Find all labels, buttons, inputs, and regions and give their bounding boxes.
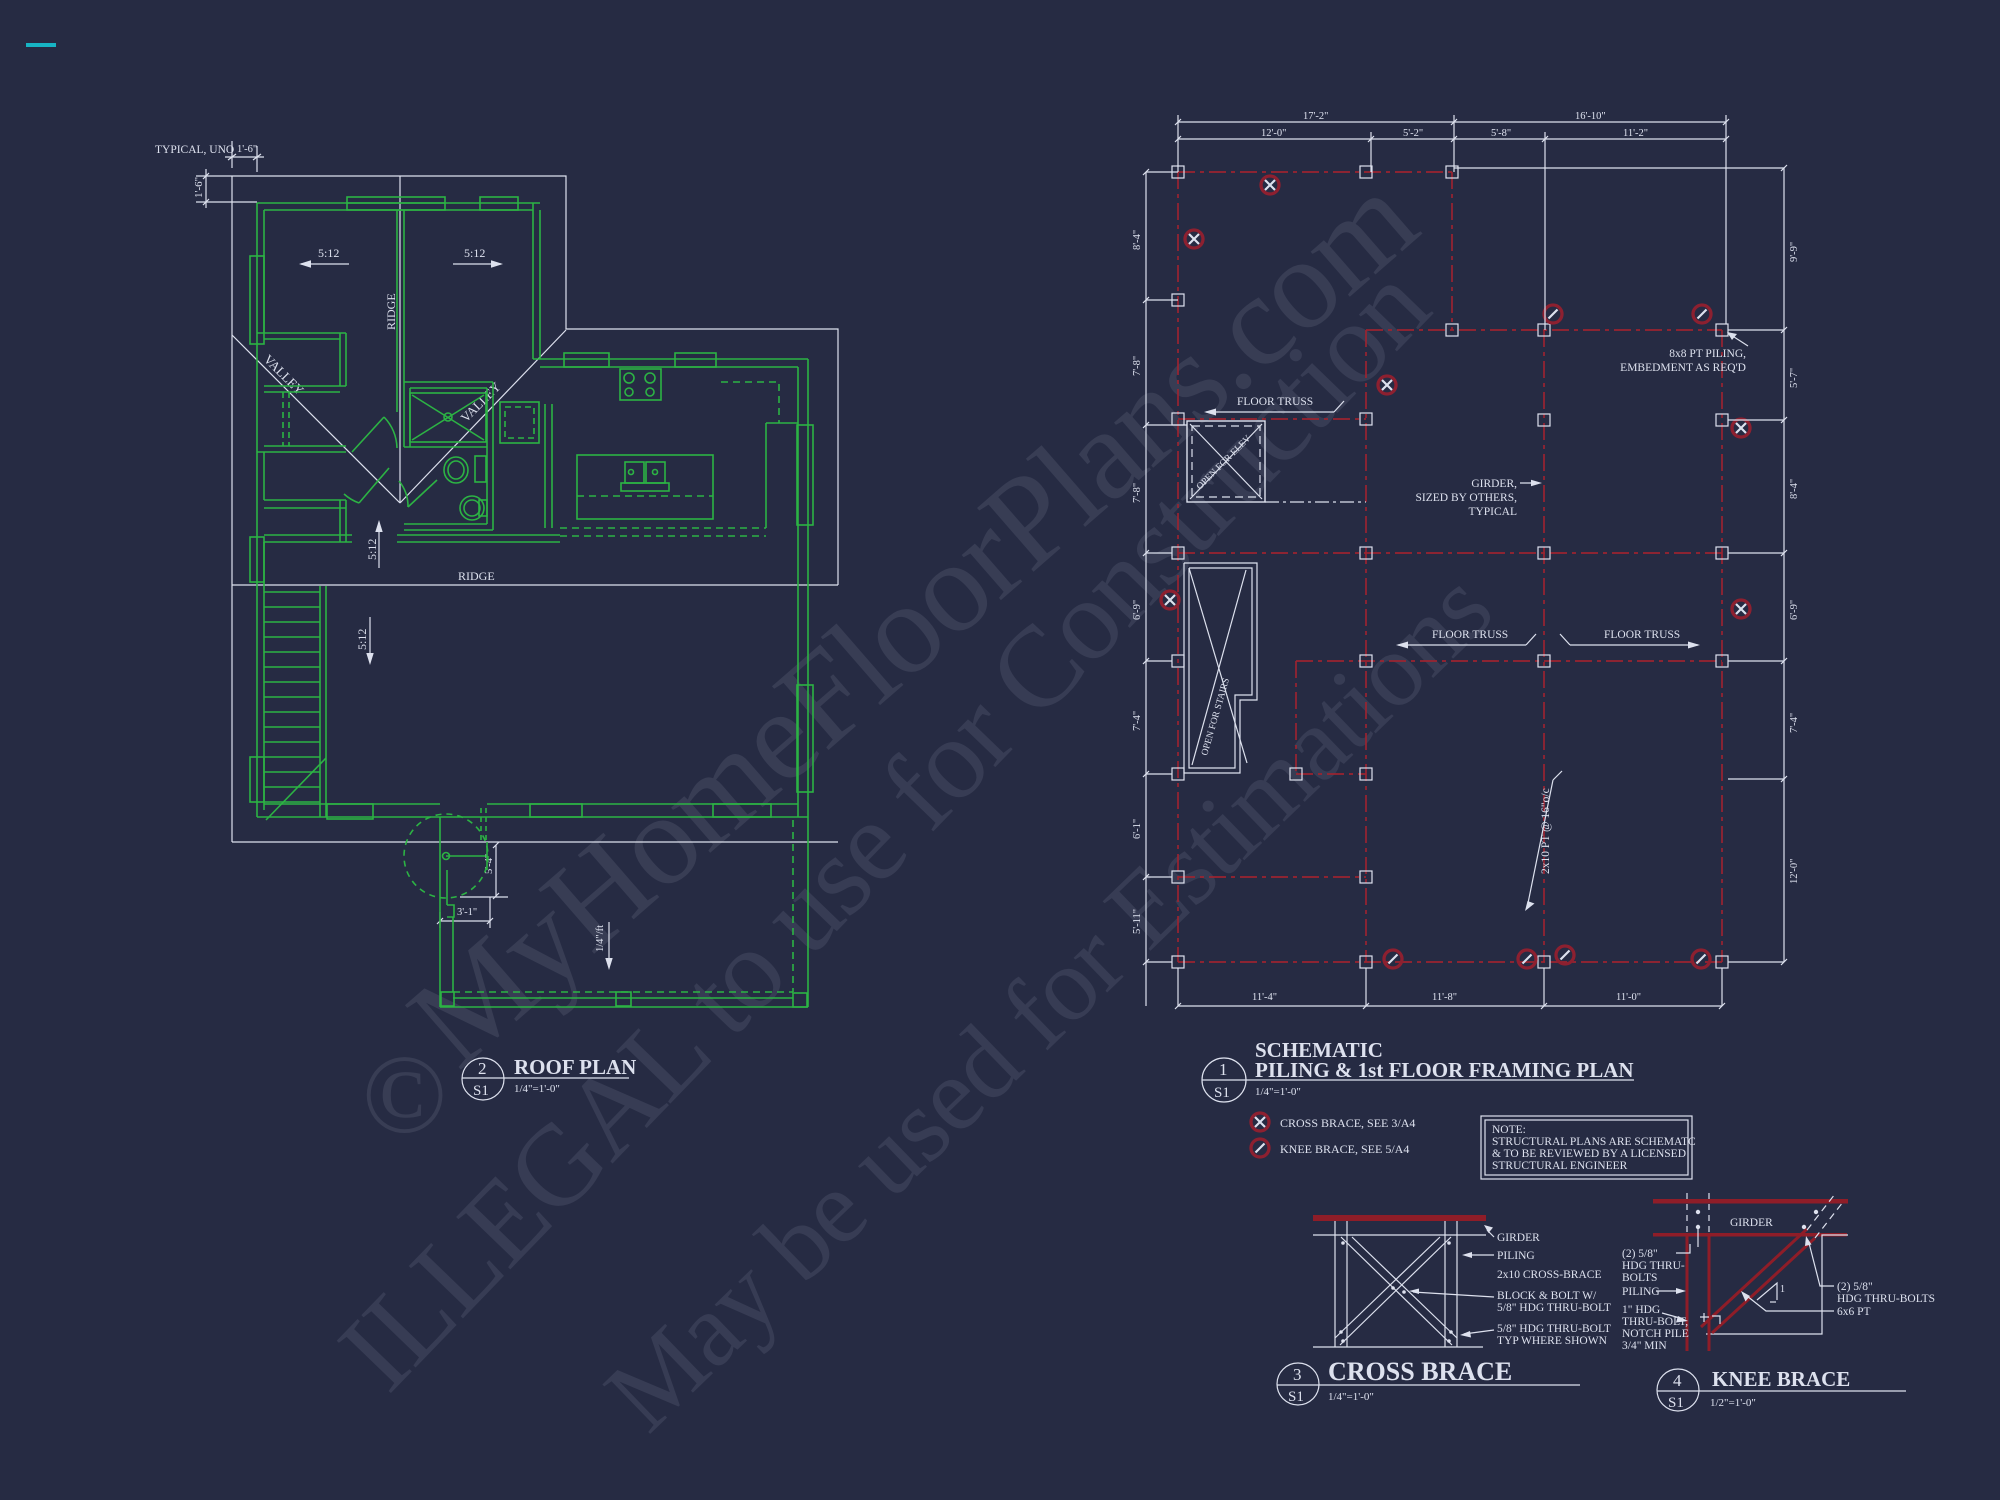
- svg-text:GIRDER: GIRDER: [1730, 1217, 1773, 1229]
- svg-text:S1: S1: [473, 1083, 489, 1099]
- svg-text:7'-8": 7'-8": [1132, 356, 1143, 376]
- svg-text:1" HDG: 1" HDG: [1622, 1304, 1660, 1316]
- svg-text:1/4"=1'-0": 1/4"=1'-0": [1255, 1086, 1301, 1098]
- svg-text:1/4"/ft: 1/4"/ft: [595, 925, 606, 952]
- svg-text:6'-9": 6'-9": [1789, 600, 1800, 620]
- svg-text:7'-8": 7'-8": [1132, 483, 1143, 503]
- svg-text:5'-2": 5'-2": [1403, 128, 1423, 139]
- svg-text:5:12: 5:12: [318, 246, 339, 260]
- svg-text:GIRDER,: GIRDER,: [1471, 478, 1517, 490]
- svg-text:SIZED BY OTHERS,: SIZED BY OTHERS,: [1416, 492, 1518, 504]
- svg-text:3: 3: [1293, 1365, 1302, 1384]
- svg-text:STRUCTURAL PLANS ARE SCHEMATC: STRUCTURAL PLANS ARE SCHEMATC: [1492, 1136, 1696, 1148]
- svg-text:PILING: PILING: [1497, 1250, 1535, 1262]
- svg-text:1/4"=1'-0": 1/4"=1'-0": [514, 1083, 560, 1095]
- svg-text:11'-2": 11'-2": [1623, 128, 1648, 139]
- svg-text:3'-1": 3'-1": [457, 907, 477, 918]
- svg-text:12'-0": 12'-0": [1789, 859, 1800, 884]
- svg-text:1: 1: [1219, 1060, 1228, 1079]
- svg-text:9'-9": 9'-9": [1789, 242, 1800, 262]
- svg-text:KNEE BRACE: KNEE BRACE: [1712, 1367, 1850, 1391]
- svg-text:S1: S1: [1288, 1389, 1304, 1405]
- svg-text:HDG THRU-: HDG THRU-: [1622, 1260, 1685, 1272]
- svg-text:5:12: 5:12: [464, 246, 485, 260]
- svg-text:FLOOR TRUSS: FLOOR TRUSS: [1604, 629, 1680, 641]
- svg-text:KNEE BRACE, SEE 5/A4: KNEE BRACE, SEE 5/A4: [1280, 1142, 1409, 1156]
- svg-text:8x8 PT PILING,: 8x8 PT PILING,: [1669, 348, 1746, 360]
- svg-text:TYP WHERE SHOWN: TYP WHERE SHOWN: [1497, 1335, 1608, 1347]
- svg-text:©: ©: [362, 1033, 447, 1157]
- svg-text:5'-11": 5'-11": [1132, 909, 1143, 934]
- svg-text:NOTE:: NOTE:: [1492, 1124, 1526, 1136]
- svg-text:GIRDER: GIRDER: [1497, 1232, 1540, 1244]
- svg-text:PILING & 1st FLOOR FRAMING PLA: PILING & 1st FLOOR FRAMING PLAN: [1255, 1058, 1634, 1082]
- svg-text:5:12: 5:12: [355, 629, 369, 650]
- svg-text:1'-6": 1'-6": [237, 144, 257, 155]
- svg-text:CROSS BRACE: CROSS BRACE: [1328, 1357, 1512, 1386]
- svg-text:S1: S1: [1214, 1085, 1230, 1101]
- svg-text:5/8" HDG THRU-BOLT: 5/8" HDG THRU-BOLT: [1497, 1323, 1611, 1335]
- svg-text:5'-8": 5'-8": [1491, 128, 1511, 139]
- svg-text:1/2"=1'-0": 1/2"=1'-0": [1710, 1397, 1756, 1409]
- svg-text:& TO BE REVIEWED BY A LICENSED: & TO BE REVIEWED BY A LICENSED: [1492, 1148, 1686, 1160]
- svg-text:11'-8": 11'-8": [1432, 992, 1457, 1003]
- svg-text:4: 4: [1673, 1371, 1682, 1390]
- svg-text:5/8" HDG THRU-BOLT: 5/8" HDG THRU-BOLT: [1497, 1302, 1611, 1314]
- svg-text:ROOF PLAN: ROOF PLAN: [514, 1055, 636, 1079]
- svg-text:7'-4": 7'-4": [1132, 711, 1143, 731]
- svg-text:11'-0": 11'-0": [1616, 992, 1641, 1003]
- svg-text:1: 1: [1780, 1284, 1785, 1295]
- svg-text:5'-7": 5'-7": [1789, 368, 1800, 388]
- svg-text:3/4" MIN: 3/4" MIN: [1622, 1340, 1667, 1352]
- svg-text:STRUCTURAL ENGINEER: STRUCTURAL ENGINEER: [1492, 1160, 1628, 1172]
- svg-text:2x10 PT @ 16"o/c: 2x10 PT @ 16"o/c: [1540, 788, 1552, 874]
- svg-text:11'-4": 11'-4": [1252, 992, 1277, 1003]
- svg-text:CROSS BRACE, SEE 3/A4: CROSS BRACE, SEE 3/A4: [1280, 1116, 1415, 1130]
- svg-text:EMBEDMENT AS REQ'D: EMBEDMENT AS REQ'D: [1620, 362, 1746, 374]
- svg-text:FLOOR TRUSS: FLOOR TRUSS: [1237, 396, 1313, 408]
- svg-text:2x10 CROSS-BRACE: 2x10 CROSS-BRACE: [1497, 1269, 1601, 1281]
- svg-text:17'-2": 17'-2": [1303, 111, 1328, 122]
- svg-text:6x6 PT: 6x6 PT: [1837, 1306, 1871, 1318]
- svg-text:16'-10": 16'-10": [1575, 111, 1606, 122]
- svg-text:BOLTS: BOLTS: [1622, 1272, 1657, 1284]
- svg-text:1/4"=1'-0": 1/4"=1'-0": [1328, 1391, 1374, 1403]
- svg-text:7'-4": 7'-4": [1789, 713, 1800, 733]
- svg-text:RIDGE: RIDGE: [384, 293, 398, 330]
- svg-text:NOTCH PILE: NOTCH PILE: [1622, 1328, 1689, 1340]
- svg-text:S1: S1: [1668, 1395, 1684, 1411]
- svg-text:HDG THRU-BOLTS: HDG THRU-BOLTS: [1837, 1293, 1935, 1305]
- svg-text:2: 2: [478, 1059, 487, 1078]
- svg-text:BLOCK & BOLT W/: BLOCK & BOLT W/: [1497, 1290, 1597, 1302]
- svg-text:1'-6": 1'-6": [193, 177, 205, 198]
- svg-text:RIDGE: RIDGE: [458, 569, 495, 583]
- svg-text:5:12: 5:12: [365, 539, 379, 560]
- svg-text:8'-4": 8'-4": [1789, 479, 1800, 499]
- svg-text:12'-0": 12'-0": [1261, 128, 1286, 139]
- svg-text:6'-1": 6'-1": [1132, 819, 1143, 839]
- svg-text:6'-9": 6'-9": [1132, 600, 1143, 620]
- svg-text:TYPICAL, UNO: TYPICAL, UNO: [155, 144, 234, 156]
- svg-text:8'-4": 8'-4": [1132, 230, 1143, 250]
- svg-text:(2) 5/8": (2) 5/8": [1622, 1248, 1658, 1260]
- svg-text:PILING: PILING: [1622, 1286, 1660, 1298]
- svg-text:TYPICAL: TYPICAL: [1468, 506, 1517, 518]
- svg-text:(2) 5/8": (2) 5/8": [1837, 1281, 1873, 1293]
- svg-text:FLOOR TRUSS: FLOOR TRUSS: [1432, 629, 1508, 641]
